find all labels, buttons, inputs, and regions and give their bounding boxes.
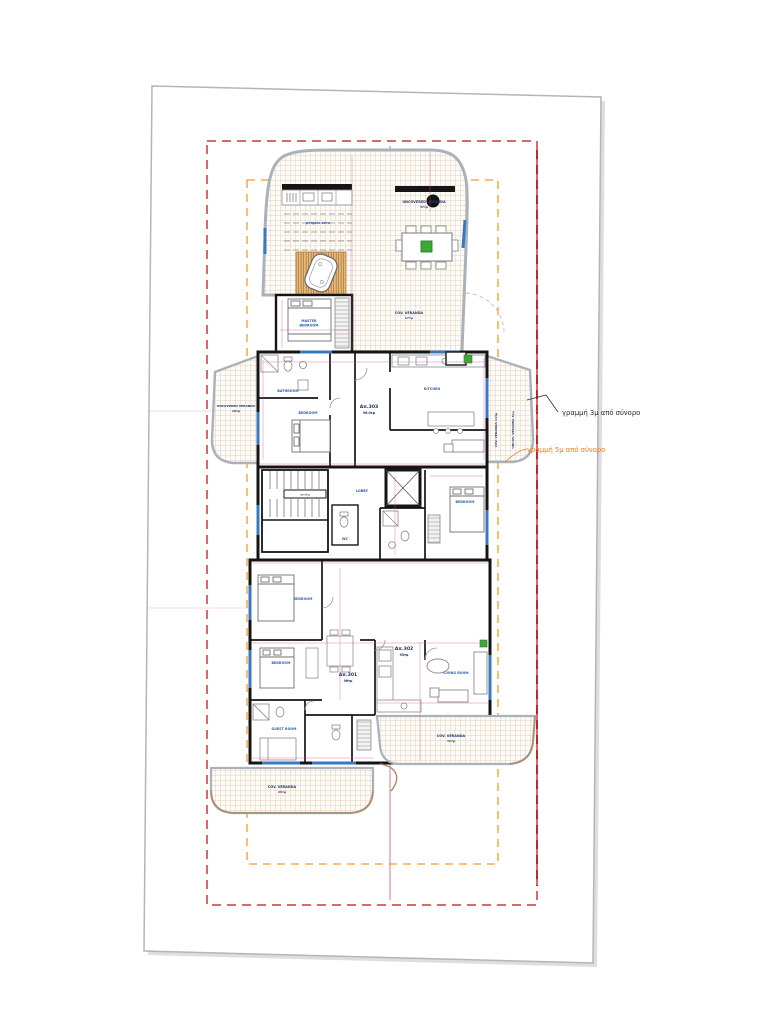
bed-icon — [260, 648, 294, 688]
right-veranda-cov-label: COV. VERANDA 11τμ — [494, 412, 498, 447]
living-room-label: LIVING ROOM — [443, 671, 468, 675]
jacuzzi-deck — [296, 251, 346, 294]
apt-301-id: Απ.301 — [339, 672, 358, 678]
master-bedroom-label-1: MASTER — [301, 319, 317, 323]
elevator — [386, 470, 420, 506]
landing-label: landing — [300, 493, 310, 497]
bed-icon — [258, 575, 294, 621]
wc-label: WC — [342, 537, 349, 541]
bottom-left-veranda-area: 23τμ — [278, 790, 287, 794]
bedroom-label-4: BEDROOM — [272, 661, 291, 665]
floor-plan-page: pergola area UNCOVERED VERANDA 37τμ COV.… — [0, 0, 764, 1024]
apt-303-id: Απ.303 — [360, 404, 379, 410]
shaft — [446, 352, 466, 365]
bottom-left-veranda-name: COV. VERANDA — [268, 785, 297, 789]
annotation-5m: γραμμή 5μ από σύνορο — [527, 446, 605, 454]
apt-303-area: 96.0τμ — [363, 411, 376, 415]
floor-plan-drawing: pergola area UNCOVERED VERANDA 37τμ COV.… — [0, 0, 764, 1024]
guest-room-label: GUEST ROOM — [271, 727, 296, 731]
top-cov-veranda-area: 17τμ — [405, 316, 414, 320]
bottom-left-veranda — [211, 768, 373, 813]
plant-icon — [480, 640, 487, 647]
bedroom-label-3: BEDROOM — [294, 597, 313, 601]
staircase: landing — [262, 470, 328, 552]
lobby-label: LOBBY — [356, 489, 369, 493]
core-band: landing LOBBY WC BEDROOM — [258, 467, 487, 560]
pergola-label: pergola area — [306, 221, 330, 225]
apt-302-id: Απ.302 — [395, 646, 414, 652]
middle-band: BATHROOM BEDROOM Απ.303 96.0τμ KITCHEN — [212, 352, 533, 467]
kitchen-label: KITCHEN — [424, 387, 441, 391]
apt-302-area: 93τμ — [400, 653, 409, 657]
bedroom-label: BEDROOM — [299, 411, 318, 415]
master-bedroom: MASTER BEDROOM — [276, 295, 352, 352]
bathroom-label: BATHROOM — [277, 389, 298, 393]
top-veranda-area: 37τμ — [420, 205, 429, 209]
sofa-icon — [438, 690, 468, 702]
right-veranda-uncov-label: UNCOV. VERANDA 5τμ — [511, 411, 515, 449]
top-veranda-name: UNCOVERED VERANDA — [402, 200, 446, 204]
left-veranda-name: UNCOVERED VERANDA — [217, 404, 256, 408]
window-strip — [463, 220, 465, 248]
bottom-right-veranda-area: 32τμ — [447, 739, 456, 743]
bedroom-label-2: BEDROOM — [456, 500, 475, 504]
top-cov-veranda-name: COV. VERANDA — [395, 311, 424, 315]
annotation-3m: γραμμή 3μ από σύνορο — [562, 409, 640, 417]
apt-301-area: 96τμ — [344, 679, 353, 683]
bottom-right-veranda-name: COV. VERANDA — [437, 734, 466, 738]
plant-icon — [421, 241, 432, 252]
sofa-icon — [474, 652, 487, 694]
left-veranda-area: 16τμ — [232, 409, 241, 413]
wardrobe — [335, 298, 349, 348]
bed-icon — [292, 420, 330, 452]
master-bedroom-label-2: BEDROOM — [300, 324, 319, 328]
bottom-right-veranda — [377, 716, 535, 764]
sofa-icon — [306, 648, 318, 678]
